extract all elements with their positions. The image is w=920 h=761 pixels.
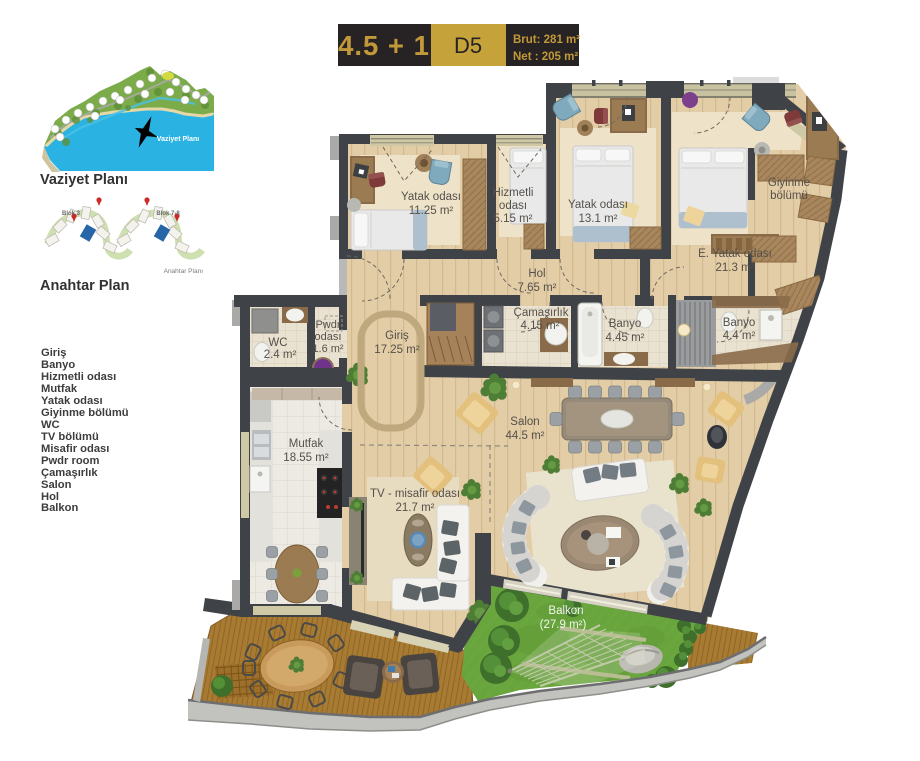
svg-text:5.15 m²: 5.15 m²	[494, 213, 533, 225]
svg-text:Giriş: Giriş	[41, 347, 67, 359]
svg-text:Blok 7-8: Blok 7-8	[156, 211, 180, 217]
svg-text:4.5 + 1: 4.5 + 1	[338, 30, 430, 61]
svg-text:odası: odası	[499, 200, 527, 212]
svg-text:Salon: Salon	[41, 479, 72, 491]
svg-text:Brut: 281 m²: Brut: 281 m²	[513, 34, 580, 46]
svg-text:Giyinme bölümü: Giyinme bölümü	[41, 407, 129, 419]
svg-text:Mutfak: Mutfak	[289, 438, 324, 450]
svg-text:Pwdr room: Pwdr room	[41, 455, 99, 467]
svg-text:7.65 m²: 7.65 m²	[518, 282, 557, 294]
svg-text:Misafir odası: Misafir odası	[41, 443, 109, 455]
svg-text:Net : 205 m²: Net : 205 m²	[513, 51, 578, 63]
svg-text:bölümü: bölümü	[770, 190, 808, 202]
svg-text:4.15 m²: 4.15 m²	[521, 320, 560, 332]
svg-text:Giyinme: Giyinme	[768, 177, 810, 189]
svg-text:2.4 m²: 2.4 m²	[264, 349, 297, 361]
svg-text:Yatak odası: Yatak odası	[568, 199, 628, 211]
svg-text:Hizmetli: Hizmetli	[493, 187, 534, 199]
svg-text:11.25 m²: 11.25 m²	[409, 205, 454, 217]
svg-text:odası: odası	[315, 331, 342, 343]
svg-text:Çamaşırlık: Çamaşırlık	[41, 467, 98, 479]
svg-text:Anahtar Plan: Anahtar Plan	[40, 278, 129, 294]
svg-text:WC: WC	[268, 337, 287, 349]
svg-text:Pwdr: Pwdr	[315, 319, 340, 331]
svg-text:Banyo: Banyo	[723, 317, 756, 329]
svg-text:Banyo: Banyo	[41, 359, 75, 371]
svg-text:Vaziyet Planı: Vaziyet Planı	[40, 172, 128, 188]
svg-text:Vaziyet Planı: Vaziyet Planı	[157, 136, 199, 143]
svg-text:21.7 m²: 21.7 m²	[396, 502, 435, 514]
svg-text:Hol: Hol	[528, 268, 545, 280]
svg-text:13.1 m²: 13.1 m²	[579, 213, 618, 225]
svg-text:17.25 m²: 17.25 m²	[374, 344, 420, 356]
svg-text:Balkon: Balkon	[548, 605, 583, 617]
svg-text:18.55 m²: 18.55 m²	[283, 452, 329, 464]
svg-text:Balkon: Balkon	[41, 502, 78, 514]
svg-text:Hizmetli odası: Hizmetli odası	[41, 371, 116, 383]
svg-text:Salon: Salon	[510, 416, 539, 428]
svg-text:Çamaşırlık: Çamaşırlık	[514, 307, 569, 319]
svg-text:(27.9 m²): (27.9 m²)	[540, 619, 587, 631]
svg-text:1.6 m²: 1.6 m²	[312, 343, 344, 355]
svg-text:4.45 m²: 4.45 m²	[606, 332, 645, 344]
svg-text:Blok 3: Blok 3	[62, 211, 81, 217]
svg-text:4.4 m²: 4.4 m²	[723, 330, 756, 342]
svg-text:TV bölümü: TV bölümü	[41, 431, 99, 443]
svg-text:Yatak odası: Yatak odası	[41, 395, 103, 407]
svg-text:Giriş: Giriş	[385, 330, 409, 342]
svg-text:Banyo: Banyo	[609, 318, 642, 330]
svg-text:Anahtar Planı: Anahtar Planı	[164, 268, 204, 275]
svg-text:WC: WC	[41, 419, 60, 431]
svg-text:Mutfak: Mutfak	[41, 383, 78, 395]
svg-text:E. Yatak odası: E. Yatak odası	[698, 248, 772, 260]
svg-text:D5: D5	[454, 33, 482, 58]
svg-text:Yatak odası: Yatak odası	[401, 191, 461, 203]
svg-text:44.5 m²: 44.5 m²	[506, 430, 545, 442]
svg-text:TV - misafir odası: TV - misafir odası	[370, 488, 460, 500]
svg-text:21.3 m²: 21.3 m²	[716, 262, 755, 274]
